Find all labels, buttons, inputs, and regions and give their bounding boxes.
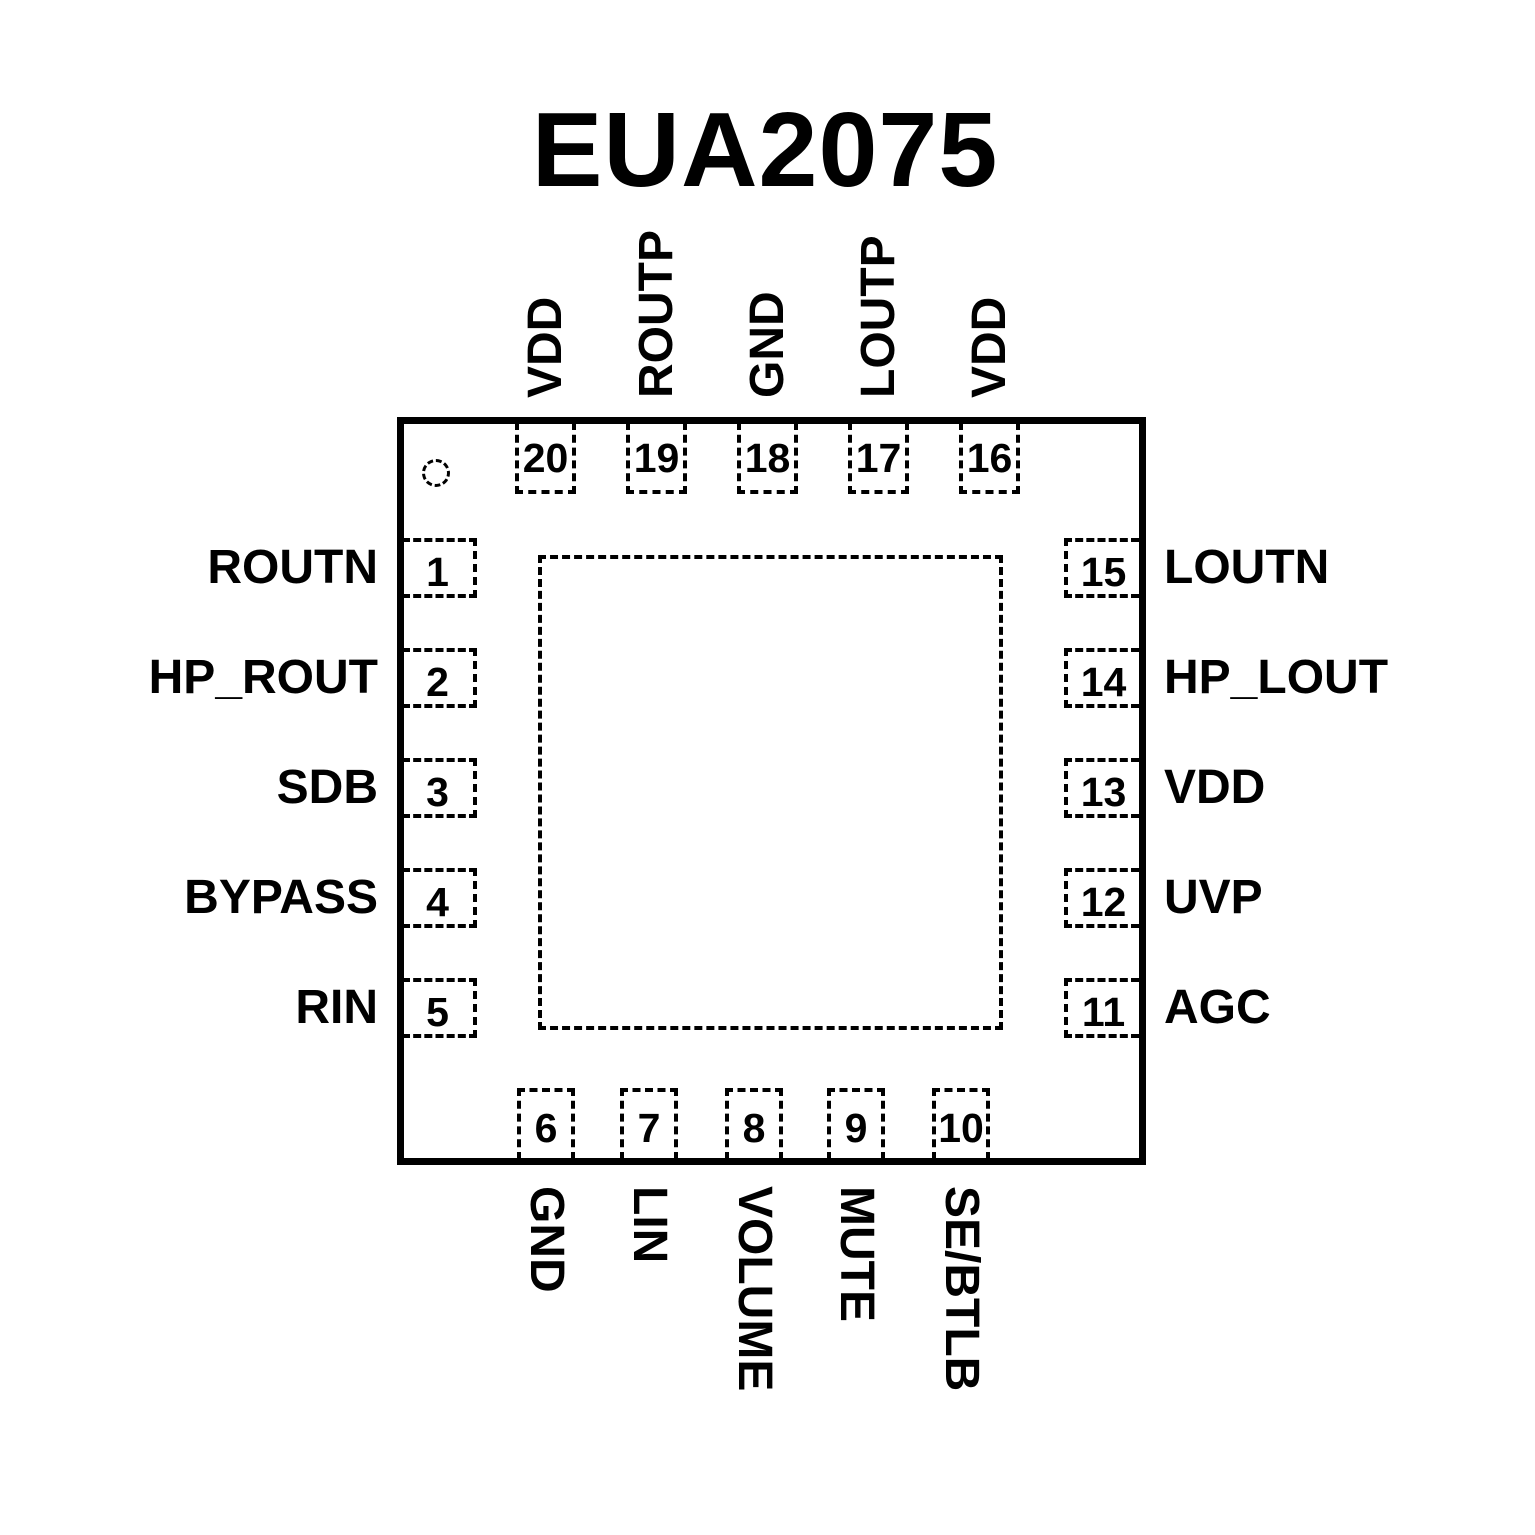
pin-label-15: LOUTN	[1164, 544, 1329, 592]
pin-number-10: 10	[936, 1092, 986, 1164]
pin-label-19: ROUTP	[633, 230, 681, 398]
pin1-indicator-circle	[422, 459, 450, 487]
pin-number-4: 4	[402, 872, 473, 932]
pin-label-13: VDD	[1164, 764, 1265, 812]
pin-number-11: 11	[1068, 982, 1139, 1042]
pin-label-12: UVP	[1164, 874, 1263, 922]
pin-box-19: 19	[626, 422, 687, 494]
pin-label-6: GND	[522, 1186, 570, 1293]
pin-label-4: BYPASS	[0, 874, 378, 922]
pin-number-20: 20	[519, 422, 572, 494]
pin-label-14: HP_LOUT	[1164, 654, 1388, 702]
pin-box-16: 16	[959, 422, 1020, 494]
pin-number-8: 8	[729, 1092, 779, 1164]
pin-number-5: 5	[402, 982, 473, 1042]
pin-label-9: MUTE	[832, 1186, 880, 1322]
pin-label-10: SE/BTLB	[937, 1186, 985, 1391]
pin-box-20: 20	[515, 422, 576, 494]
pin-label-7: LIN	[625, 1186, 673, 1263]
pin-box-15: 15	[1064, 538, 1139, 598]
thermal-pad-outline	[538, 555, 1003, 1030]
pin-label-8: VOLUME	[730, 1186, 778, 1391]
pin-number-18: 18	[741, 422, 794, 494]
pin-number-15: 15	[1068, 542, 1139, 602]
pin-label-1: ROUTN	[0, 544, 378, 592]
pin-number-3: 3	[402, 762, 473, 822]
pin-label-5: RIN	[0, 984, 378, 1032]
pin-number-12: 12	[1068, 872, 1139, 932]
pin-number-6: 6	[521, 1092, 571, 1164]
pin-number-7: 7	[624, 1092, 674, 1164]
pin-box-11: 11	[1064, 978, 1139, 1038]
pin-label-3: SDB	[0, 764, 378, 812]
pin-number-17: 17	[852, 422, 905, 494]
pin-number-2: 2	[402, 652, 473, 712]
pin-box-4: 4	[402, 868, 477, 928]
pin-box-18: 18	[737, 422, 798, 494]
pin-box-8: 8	[725, 1088, 783, 1160]
pin-number-13: 13	[1068, 762, 1139, 822]
pin-box-9: 9	[827, 1088, 885, 1160]
pin-label-11: AGC	[1164, 984, 1271, 1032]
pin-number-1: 1	[402, 542, 473, 602]
pin-box-2: 2	[402, 648, 477, 708]
pin-box-17: 17	[848, 422, 909, 494]
pin-label-2: HP_ROUT	[0, 654, 378, 702]
pin-label-17: LOUTP	[855, 235, 903, 398]
chip-title: EUA2075	[285, 92, 1245, 208]
pin-box-3: 3	[402, 758, 477, 818]
pin-box-14: 14	[1064, 648, 1139, 708]
pin-number-16: 16	[963, 422, 1016, 494]
pin-number-14: 14	[1068, 652, 1139, 712]
pin-box-1: 1	[402, 538, 477, 598]
pin-label-20: VDD	[522, 297, 570, 398]
pin-box-6: 6	[517, 1088, 575, 1160]
pin-label-16: VDD	[966, 297, 1014, 398]
pin-box-5: 5	[402, 978, 477, 1038]
pin-label-18: GND	[744, 291, 792, 398]
pin-box-12: 12	[1064, 868, 1139, 928]
pin-box-10: 10	[932, 1088, 990, 1160]
pin-box-13: 13	[1064, 758, 1139, 818]
pin-number-9: 9	[831, 1092, 881, 1164]
pin-box-7: 7	[620, 1088, 678, 1160]
pin-number-19: 19	[630, 422, 683, 494]
